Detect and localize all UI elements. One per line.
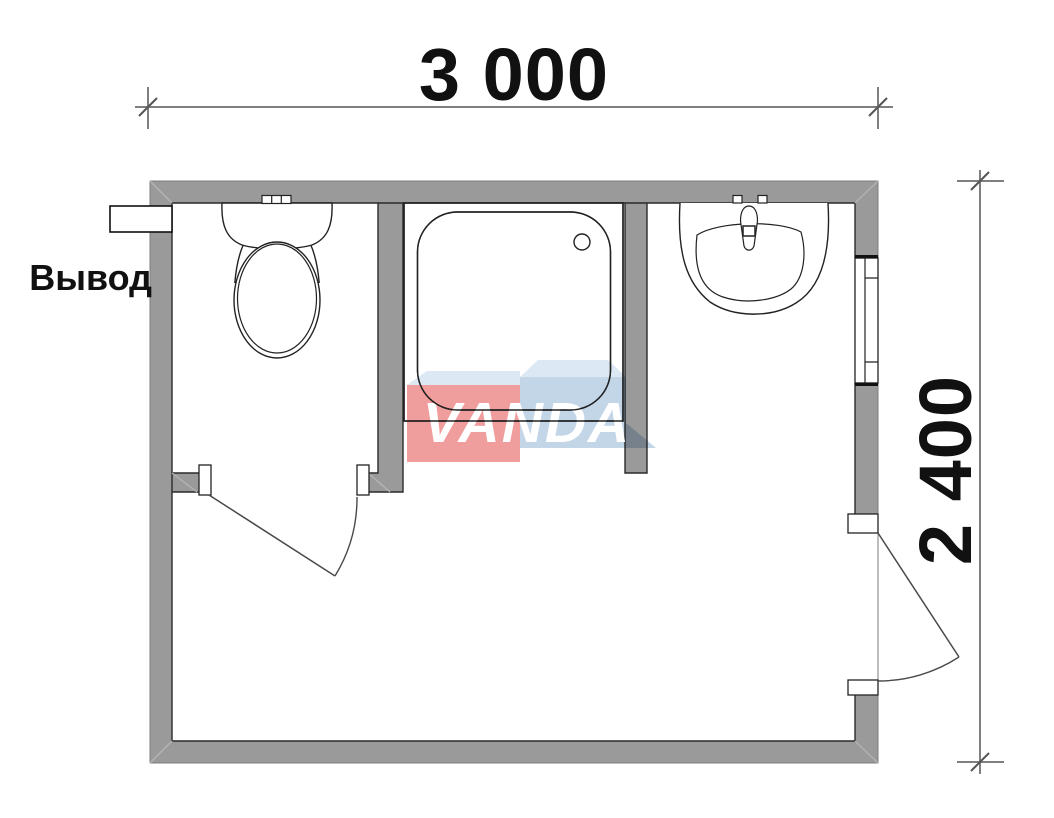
toilet-bowl-outer	[234, 242, 320, 358]
floor-plan-drawing: VANDA 3 000 2 400 Вывод	[0, 0, 1054, 818]
wc-door-jamb-left	[199, 465, 211, 495]
entrance-door-jamb-top	[848, 514, 878, 533]
shower-drain	[574, 234, 590, 250]
entrance-door-jamb-bottom	[848, 680, 878, 695]
wc-door-leaf	[209, 495, 335, 576]
toilet-flush-buttons	[262, 196, 291, 204]
partition-wc-shower	[378, 203, 403, 492]
toilet	[222, 196, 332, 359]
wall-right-middle	[855, 383, 878, 532]
wc-door-swing-arc	[335, 497, 357, 576]
water-connector-right	[758, 196, 767, 204]
dimension-width-label: 3 000	[419, 33, 609, 116]
outlet-label: Вывод	[29, 257, 152, 298]
washbasin	[679, 196, 828, 315]
wall-top	[150, 181, 878, 203]
entrance-door-swing-arc	[878, 657, 959, 681]
water-outlet-pipe	[110, 206, 172, 232]
water-connector-left	[733, 196, 742, 204]
faucet-spout	[743, 226, 755, 236]
window-cap-top	[855, 255, 878, 259]
window-frame	[855, 258, 878, 383]
toilet-flush-button-plate	[262, 196, 291, 204]
window	[855, 255, 878, 386]
watermark-logo-text: VANDA	[423, 391, 631, 455]
wall-bottom	[150, 741, 878, 763]
wc-door-jamb-right	[357, 465, 369, 495]
window-cap-bottom	[855, 383, 878, 387]
wall-left	[150, 181, 172, 763]
wc-door	[199, 465, 369, 576]
water-outlet	[110, 206, 172, 232]
floor-plan-canvas: VANDA 3 000 2 400 Вывод	[0, 0, 1054, 818]
dimension-height-label: 2 400	[904, 375, 987, 565]
